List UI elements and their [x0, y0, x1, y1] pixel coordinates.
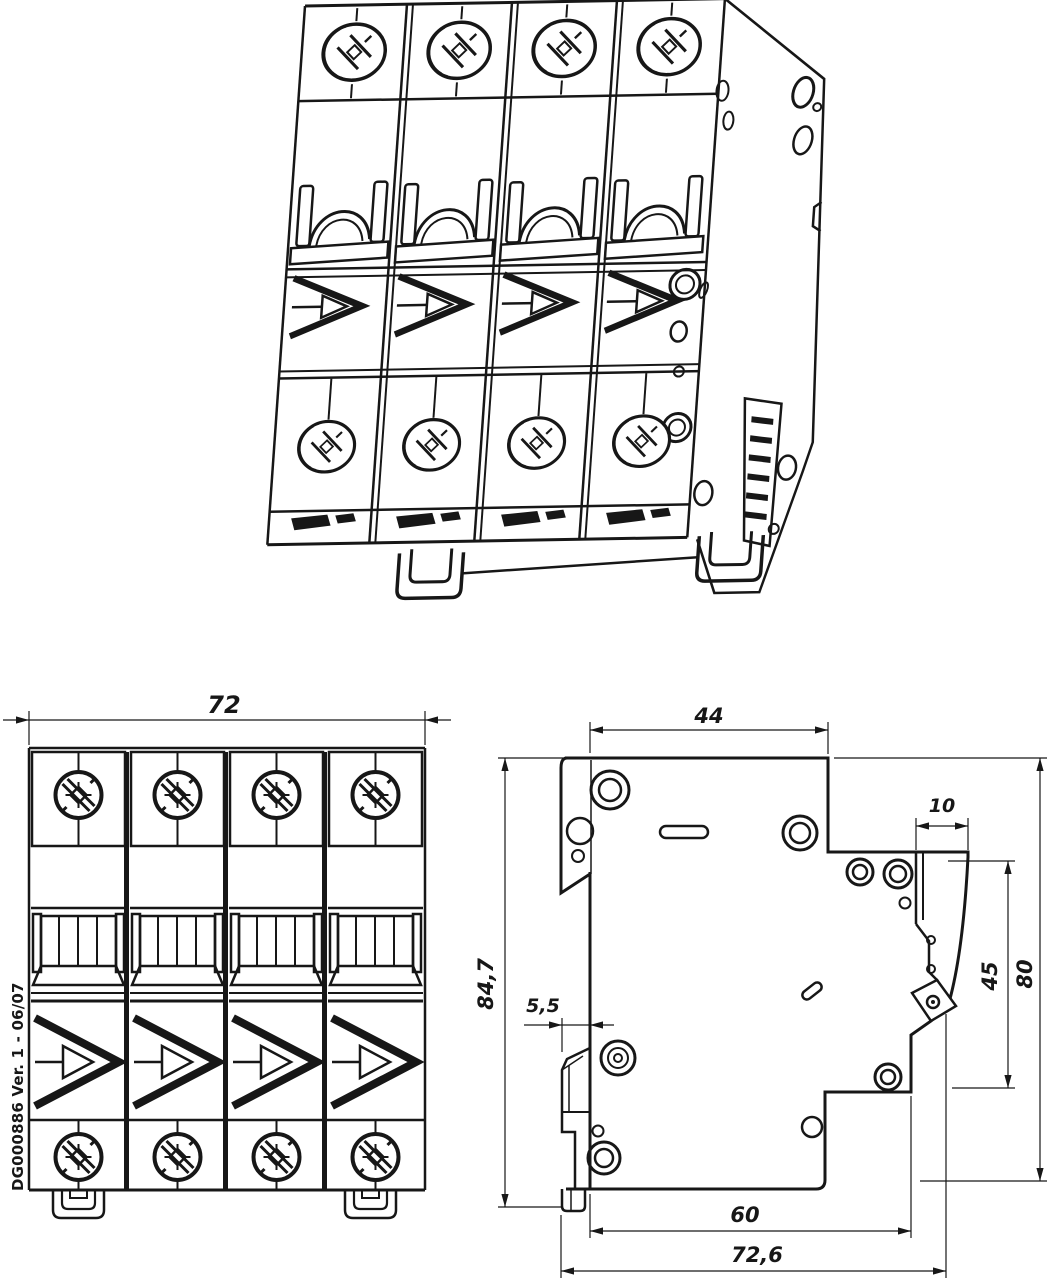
dim-label-overall-depth: 72,6 [731, 1243, 783, 1267]
technical-drawing-page: 72 DG000886 Ver. 1 - 06/07 [0, 0, 1048, 1280]
din-clip-left [396, 548, 463, 598]
dim-label-body-height: 80 [1013, 959, 1037, 988]
front-pole-1 [31, 752, 126, 1190]
dim-rail-claw-5-5: 5,5 [524, 995, 614, 1052]
dim-label-handle-step: 10 [929, 795, 955, 817]
front-pole-4 [328, 752, 423, 1190]
front-din-tab-left [53, 1190, 104, 1218]
dim-label-width: 72 [207, 691, 240, 719]
doc-ref-label: DG000886 Ver. 1 - 06/07 [9, 982, 27, 1191]
front-pole-3 [229, 752, 324, 1190]
din-clip-right [696, 531, 763, 581]
side-housing-details [567, 771, 912, 1174]
dim-width-72: 72 [3, 691, 451, 745]
dim-label-front-height: 45 [978, 961, 1002, 991]
front-pole-2 [130, 752, 225, 1190]
side-view: 44 10 45 80 [474, 704, 1047, 1278]
dim-label-rail-claw: 5,5 [526, 995, 560, 1017]
dim-top-depth-44: 44 [590, 704, 828, 754]
dim-front-height-45: 45 [948, 861, 1015, 1088]
isometric-view [263, 0, 844, 601]
rail-spring-clip [562, 1048, 590, 1189]
bottom-tab [562, 1189, 585, 1211]
dim-label-top-depth: 44 [693, 704, 723, 728]
front-assembly [267, 0, 725, 545]
dim-label-body-depth: 60 [730, 1203, 759, 1227]
toggle-lever [912, 852, 956, 1021]
technical-drawing-canvas: 72 DG000886 Ver. 1 - 06/07 [0, 0, 1048, 1280]
dim-overall-height-84-7: 84,7 [474, 758, 563, 1207]
front-din-tab-right [345, 1190, 396, 1218]
detent-pin [801, 981, 824, 1002]
side-profile [565, 758, 968, 1189]
vent-slot [660, 826, 708, 838]
dim-body-height-80: 80 [834, 758, 1047, 1181]
dim-handle-step-10: 10 [916, 795, 968, 850]
dim-label-overall-height: 84,7 [474, 958, 498, 1010]
dim-body-depth-60: 60 [590, 1096, 911, 1238]
front-view: 72 DG000886 Ver. 1 - 06/07 [3, 691, 451, 1218]
